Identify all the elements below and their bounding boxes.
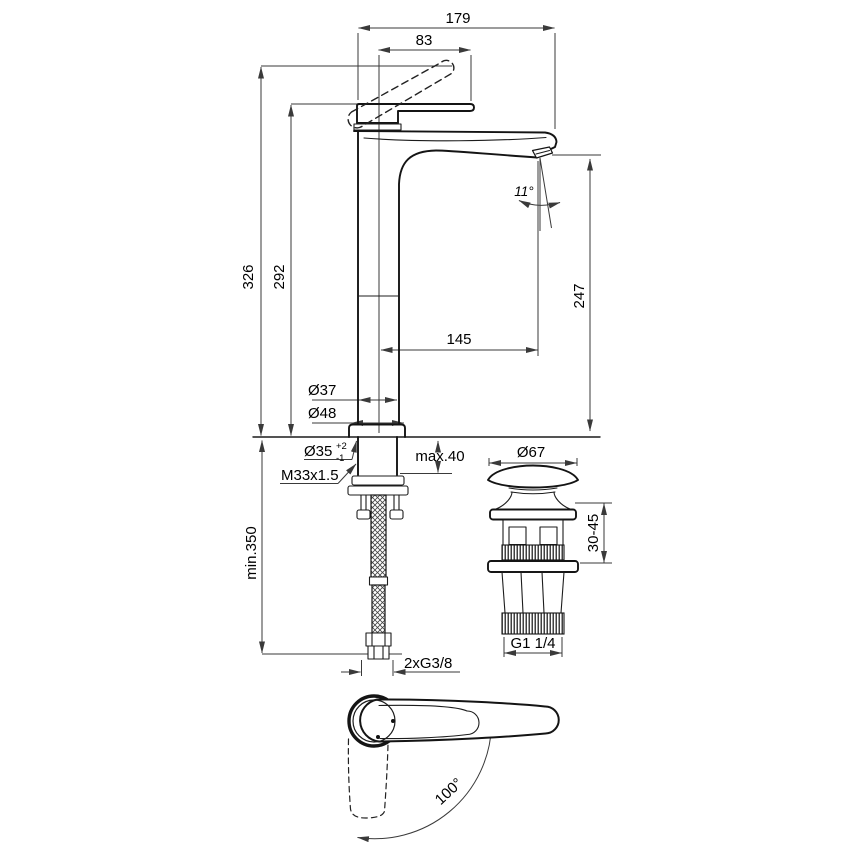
handle-dot-upper (391, 719, 395, 723)
extension-lines (362, 660, 394, 676)
braided-hose-lower (372, 585, 385, 633)
spout-inner-line (364, 138, 546, 141)
dim-max40-label: max.40 (415, 448, 464, 465)
thread-m33-label: M33x1.5 (281, 467, 339, 484)
horseshoe-bracket (348, 486, 408, 495)
dim-326-label: 326 (240, 264, 257, 289)
cap-lip-lines (509, 488, 557, 494)
pop-up-drain (488, 466, 578, 635)
hose-end-nut (368, 646, 389, 659)
drain-locknut-flange (488, 561, 578, 572)
braided-hose-upper (371, 495, 386, 577)
faucet-side-view (253, 60, 600, 437)
drain-slotted-body (503, 520, 563, 545)
dim-handle-swing-100 (358, 726, 492, 839)
dim-lever-reach-83 (379, 50, 472, 101)
dim-dia35-tol-minus: -1 (336, 453, 344, 464)
drain-thread-lower (502, 613, 564, 634)
technical-drawing: 179 83 326 292 247 145 11° Ø37 Ø48 Ø35 +… (0, 0, 850, 850)
dim-83-label: 83 (416, 32, 433, 49)
dim-179-label: 179 (445, 10, 470, 27)
handle-dot-lower (376, 735, 380, 739)
handle-top-view (348, 696, 558, 818)
dim-dia67-label: Ø67 (517, 444, 545, 461)
dim-30-45-label: 30-45 (585, 514, 602, 552)
stud-nut-right (390, 510, 403, 519)
dim-min350-label: min.350 (243, 526, 260, 579)
extension-lines (358, 33, 555, 129)
dim-total-width-179 (358, 28, 555, 129)
dim-dia35-label: Ø35 (304, 443, 332, 460)
mounting-washer (352, 476, 404, 485)
stud-nut-left (357, 510, 370, 519)
drain-cap-dome (488, 466, 578, 488)
dim-292-label: 292 (271, 264, 288, 289)
dim-dia35-tol-plus: +2 (336, 441, 347, 452)
dim-dia37-label: Ø37 (308, 382, 336, 399)
swing-arc (358, 726, 492, 839)
dim-247-label: 247 (571, 283, 588, 308)
thread-2xg38-label: 2xG3/8 (404, 655, 452, 672)
leader-arrow (338, 464, 356, 484)
overflow-slot-left (509, 527, 526, 545)
hose-fitting-body (366, 633, 391, 646)
drawing-page: 179 83 326 292 247 145 11° Ø37 Ø48 Ø35 +… (0, 0, 850, 850)
dim-dia48-label: Ø48 (308, 405, 336, 422)
dim-11deg-label: 11° (514, 184, 534, 199)
base-flange (349, 425, 405, 438)
dim-145-label: 145 (446, 331, 471, 348)
threaded-shank (358, 437, 397, 475)
drain-thread-upper (502, 545, 564, 560)
hose-union (370, 577, 388, 585)
drain-bell (495, 492, 571, 510)
drain-washer-flange (490, 510, 576, 520)
mounting-stud-left (361, 495, 366, 510)
spout-top-edge (354, 131, 557, 154)
thread-g114-label: G1 1/4 (510, 635, 555, 652)
supply-hose (366, 495, 391, 659)
drain-hex-body (502, 572, 564, 613)
mounting-stud-right (394, 495, 399, 510)
angle-reference-lines (540, 158, 552, 231)
leader-arrow (352, 441, 357, 460)
overflow-slot-right (540, 527, 557, 545)
dim-100deg-label: 100° (432, 775, 466, 809)
lever-handle-closed (357, 104, 474, 123)
handle-rotated-dashed (348, 739, 388, 818)
lever-handle-open-dashed (348, 60, 454, 128)
